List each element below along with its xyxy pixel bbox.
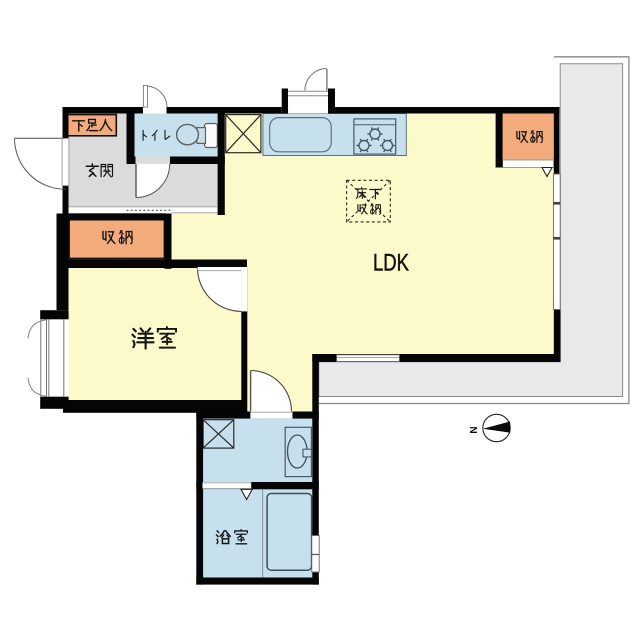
svg-text:N: N (469, 426, 480, 433)
svg-text:LDK: LDK (373, 250, 409, 277)
